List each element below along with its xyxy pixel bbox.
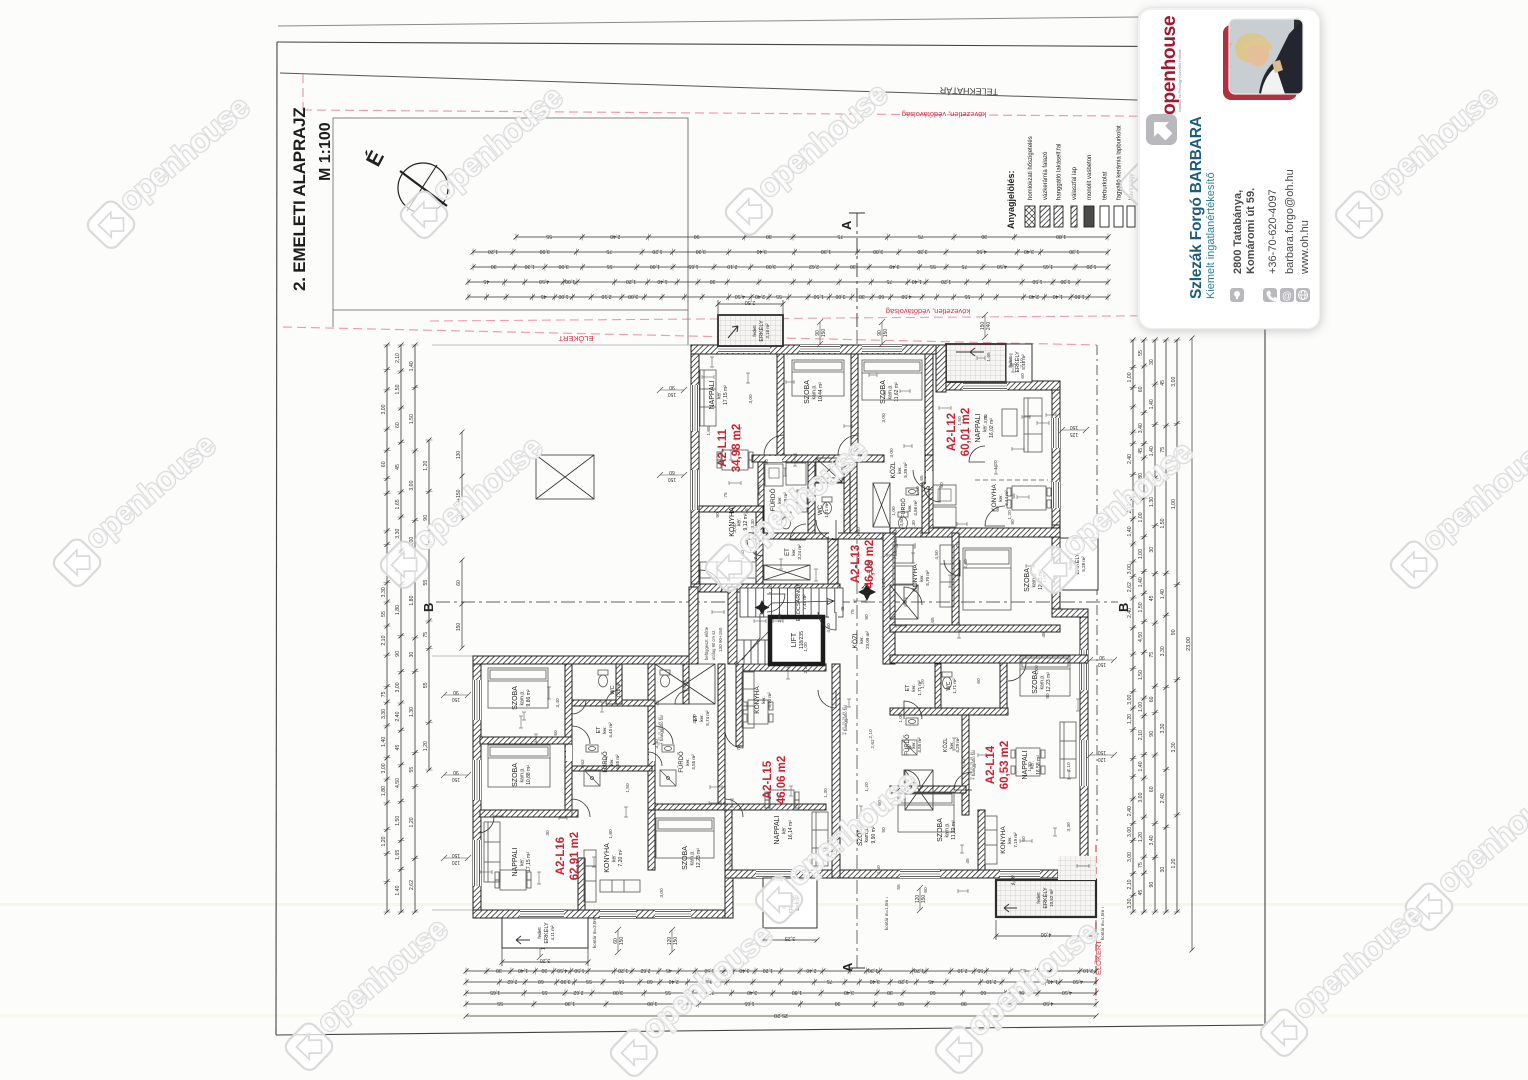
svg-text:75: 75 (887, 278, 893, 284)
svg-text:1,80: 1,80 (1010, 875, 1016, 885)
svg-text:75: 75 (837, 233, 843, 239)
svg-text:Ingatlan és Pénzügyi Közvet: Ingatlan és Pénzügyi Közvetítő Hálózat (1178, 49, 1182, 112)
svg-text:45: 45 (1041, 632, 1047, 638)
svg-text:A2-L12: A2-L12 (946, 413, 958, 451)
svg-text:ker.: ker. (911, 684, 916, 691)
svg-text:55: 55 (1138, 350, 1144, 356)
svg-text:1,30: 1,30 (911, 520, 917, 530)
svg-text:1,20: 1,20 (1171, 858, 1177, 868)
svg-text:1,40: 1,40 (381, 737, 387, 747)
svg-text:A2-L16: A2-L16 (555, 837, 567, 875)
svg-text:kontár m=1,0m ↓: kontár m=1,0m ↓ (884, 896, 889, 930)
svg-text:1,65: 1,65 (919, 475, 925, 485)
svg-text:150: 150 (668, 391, 677, 397)
svg-text:55: 55 (542, 989, 548, 995)
svg-text:55: 55 (546, 233, 552, 239)
svg-text:45: 45 (483, 278, 489, 284)
svg-text:A2-L15: A2-L15 (762, 760, 774, 799)
svg-text:30: 30 (491, 263, 497, 269)
svg-text:1,50: 1,50 (814, 293, 824, 299)
svg-text:45: 45 (840, 606, 846, 612)
svg-text:3,00: 3,00 (559, 263, 569, 269)
svg-text:NAPPALI: NAPPALI (512, 847, 519, 876)
svg-text:+ hanggátló fal: + hanggátló fal (843, 705, 848, 735)
svg-text:130 90+150: 130 90+150 (718, 627, 723, 652)
svg-text:45: 45 (965, 858, 971, 864)
svg-text:1,30: 1,30 (409, 707, 415, 717)
svg-text:1,50: 1,50 (915, 486, 921, 496)
svg-text:1,50: 1,50 (1138, 602, 1144, 612)
svg-text:1,20: 1,20 (488, 248, 498, 254)
svg-text:4,00: 4,00 (1041, 931, 1052, 937)
svg-text:ker.: ker. (919, 574, 924, 581)
svg-text:3,30: 3,30 (1066, 822, 1072, 832)
svg-text:4,56 m²: 4,56 m² (913, 500, 918, 516)
svg-text:62,91 m2: 62,91 m2 (569, 832, 581, 881)
svg-text:SZOBA: SZOBA (804, 380, 811, 404)
svg-text:3,00: 3,00 (873, 248, 883, 254)
svg-text:1,20: 1,20 (409, 817, 415, 827)
svg-text:homlokzati hőszigetelés: homlokzati hőszigetelés (1028, 136, 1034, 200)
svg-text:1,20: 1,20 (920, 679, 926, 689)
svg-text:60: 60 (1149, 696, 1155, 702)
svg-text:1,20: 1,20 (423, 461, 429, 471)
svg-text:KÖZL: KÖZL (851, 631, 859, 648)
svg-text:1,20: 1,20 (618, 967, 628, 973)
svg-text:30: 30 (887, 989, 893, 995)
svg-text:3,16 m²: 3,16 m² (765, 323, 770, 339)
svg-text:3,00: 3,00 (1127, 852, 1133, 862)
svg-text:90: 90 (1149, 882, 1155, 888)
svg-text:2,40: 2,40 (806, 967, 816, 973)
svg-text:12,23 m²: 12,23 m² (1046, 672, 1052, 692)
svg-text:1,20: 1,20 (652, 248, 662, 254)
svg-text:3,40: 3,40 (555, 698, 561, 708)
svg-text:1,20: 1,20 (1138, 832, 1144, 842)
svg-text:60: 60 (976, 678, 982, 684)
svg-text:60: 60 (669, 469, 675, 475)
svg-text:2,40: 2,40 (963, 559, 969, 569)
svg-text:1,20: 1,20 (423, 741, 429, 751)
svg-text:1,40: 1,40 (912, 278, 922, 284)
svg-text:30: 30 (1149, 359, 1155, 365)
svg-text:1,71 m²: 1,71 m² (824, 502, 829, 518)
svg-text:1,00: 1,00 (1138, 512, 1144, 522)
svg-text:2,10: 2,10 (986, 978, 996, 984)
svg-text:1,40: 1,40 (1160, 589, 1166, 599)
svg-text:90: 90 (961, 1000, 967, 1006)
svg-text:75: 75 (723, 492, 729, 498)
svg-text:55: 55 (607, 263, 613, 269)
svg-text:fedett: fedett (752, 325, 757, 337)
svg-text:4,50: 4,50 (395, 778, 401, 788)
svg-text:1,50: 1,50 (1032, 278, 1042, 284)
svg-text:B: B (421, 603, 436, 612)
svg-text:45: 45 (928, 978, 934, 984)
svg-text:1,20: 1,20 (1034, 665, 1040, 675)
svg-text:1,00: 1,00 (1138, 549, 1144, 559)
svg-text:45: 45 (744, 508, 750, 514)
svg-text:A2-L11: A2-L11 (717, 429, 729, 467)
svg-text:Anyagjelölés:: Anyagjelölés: (1006, 170, 1016, 229)
svg-text:30: 30 (981, 233, 987, 239)
svg-text:9,86 m²: 9,86 m² (526, 689, 532, 706)
svg-text:1,40: 1,40 (1138, 761, 1144, 771)
svg-text:3,20: 3,20 (540, 957, 551, 963)
svg-text:75: 75 (962, 263, 968, 269)
svg-text:1,30: 1,30 (868, 967, 878, 973)
svg-text:SZOBA: SZOBA (512, 763, 519, 787)
svg-text:FÜRDŐ: FÜRDŐ (678, 751, 685, 773)
svg-text:4,50: 4,50 (539, 278, 549, 284)
svg-text:1,80: 1,80 (1074, 293, 1084, 299)
svg-text:ker.: ker. (782, 826, 788, 834)
svg-text:120: 120 (452, 859, 461, 865)
svg-text:ker.: ker. (699, 714, 704, 721)
svg-text:45: 45 (541, 293, 547, 299)
svg-text:hanggátló lakáself.fal: hanggátló lakáself.fal (1057, 144, 1063, 200)
svg-text:Komáromi út 59.: Komáromi út 59. (1245, 188, 1257, 274)
svg-text:ERKÉLY: ERKÉLY (1042, 887, 1049, 909)
svg-text:1,80: 1,80 (1056, 233, 1066, 239)
svg-text:125: 125 (1070, 431, 1079, 437)
svg-text:150: 150 (1098, 661, 1107, 667)
svg-text:A2-L14: A2-L14 (985, 745, 997, 784)
svg-text:150: 150 (668, 476, 677, 482)
svg-text:1,50: 1,50 (1138, 670, 1144, 680)
svg-text:75: 75 (1149, 652, 1155, 658)
svg-text:TELEKHATÁR: TELEKHATÁR (939, 85, 998, 97)
svg-text:ker.: ker. (907, 504, 912, 511)
svg-text:ker.: ker. (520, 858, 526, 866)
svg-text:1,20: 1,20 (381, 836, 387, 846)
svg-text:3,30: 3,30 (1160, 646, 1166, 656)
svg-text:1,40: 1,40 (768, 584, 774, 594)
svg-text:ker.: ker. (717, 391, 723, 399)
svg-text:3,30: 3,30 (696, 248, 706, 254)
svg-text:1,80: 1,80 (792, 989, 802, 995)
svg-text:Kiemelt ingatlanértékesítő: Kiemelt ingatlanértékesítő (1205, 172, 1217, 299)
svg-text:3,25: 3,25 (785, 935, 796, 941)
svg-text:KONYHA: KONYHA (1000, 826, 1007, 854)
svg-text:3,30: 3,30 (1171, 742, 1177, 752)
svg-text:2,10: 2,10 (957, 967, 967, 973)
svg-text:Szlezák Forgó BARBARA: Szlezák Forgó BARBARA (1188, 116, 1205, 299)
svg-text:barbara.forgo@oh.hu: barbara.forgo@oh.hu (1284, 169, 1296, 274)
svg-text:1,20: 1,20 (763, 967, 773, 973)
svg-text:4,50: 4,50 (1043, 1000, 1053, 1006)
svg-text:2,40: 2,40 (755, 293, 765, 299)
svg-text:75: 75 (1138, 862, 1144, 868)
svg-text:75: 75 (381, 691, 387, 697)
svg-text:ERKÉLY: ERKÉLY (758, 320, 765, 342)
svg-text:60: 60 (930, 989, 936, 995)
svg-text:1,40: 1,40 (1127, 526, 1133, 536)
svg-text:1,30: 1,30 (823, 788, 829, 798)
svg-text:10,88 m²: 10,88 m² (526, 765, 532, 785)
svg-text:4,45 m²: 4,45 m² (608, 722, 613, 738)
svg-text:3,00: 3,00 (692, 714, 698, 724)
svg-text:kam.p.: kam.p. (520, 690, 526, 705)
svg-text:ker.: ker. (949, 741, 954, 748)
svg-text:90: 90 (694, 233, 700, 239)
svg-text:1,20: 1,20 (1007, 510, 1013, 520)
svg-text:3,40: 3,40 (1138, 423, 1144, 433)
svg-text:55: 55 (896, 884, 902, 890)
svg-text:55: 55 (618, 978, 624, 984)
svg-text:1,40: 1,40 (395, 885, 401, 895)
svg-text:NAPPALI: NAPPALI (709, 380, 716, 409)
svg-text:1,80: 1,80 (608, 829, 614, 839)
svg-text:kövezetlen, védőtávolság: kövezetlen, védőtávolság (886, 307, 970, 316)
svg-text:150: 150 (452, 852, 461, 858)
svg-text:60: 60 (553, 730, 559, 736)
svg-text:3,00: 3,00 (889, 448, 895, 458)
svg-text:1,00: 1,00 (1127, 372, 1133, 382)
svg-text:1,30: 1,30 (525, 263, 535, 269)
svg-text:90: 90 (1149, 731, 1155, 737)
svg-text:3,00: 3,00 (628, 293, 638, 299)
svg-text:kontár m=1,0m ↓: kontár m=1,0m ↓ (1100, 906, 1105, 940)
svg-text:1,80: 1,80 (381, 786, 387, 796)
svg-text:150: 150 (921, 895, 927, 904)
svg-text:1,65: 1,65 (744, 1000, 754, 1006)
svg-text:3,00: 3,00 (409, 480, 415, 490)
svg-text:45: 45 (395, 464, 401, 470)
svg-text:M 1:100: M 1:100 (317, 122, 334, 181)
svg-text:3,40: 3,40 (844, 989, 854, 995)
svg-text:30: 30 (764, 459, 770, 465)
svg-text:2,62: 2,62 (507, 978, 517, 984)
svg-text:10,62 m²: 10,62 m² (1049, 889, 1054, 907)
svg-text:90: 90 (1099, 654, 1105, 660)
svg-text:30: 30 (545, 830, 551, 836)
svg-text:55: 55 (381, 611, 387, 617)
svg-text:150: 150 (452, 776, 461, 782)
svg-text:3,00: 3,00 (766, 263, 776, 269)
svg-text:4,29 m²: 4,29 m² (955, 737, 960, 753)
svg-text:150: 150 (1070, 424, 1079, 430)
svg-text:2. EMELETI ALAPRAJZ: 2. EMELETI ALAPRAJZ (290, 107, 309, 291)
svg-text:3,40: 3,40 (1149, 835, 1155, 845)
svg-text:KONYHA: KONYHA (604, 843, 611, 873)
svg-text:ker.: ker. (602, 726, 607, 733)
svg-text:60: 60 (923, 887, 929, 893)
svg-text:4,50: 4,50 (1073, 978, 1083, 984)
svg-text:+ hanggátló fal: + hanggátló fal (971, 750, 976, 780)
svg-text:7,44 m²: 7,44 m² (802, 594, 807, 610)
svg-text:34,98 m2: 34,98 m2 (731, 424, 743, 473)
svg-text:75: 75 (736, 745, 742, 751)
svg-text:4,50: 4,50 (901, 293, 911, 299)
svg-text:2,10: 2,10 (1019, 358, 1025, 368)
svg-text:1,65: 1,65 (395, 850, 401, 860)
svg-text:1,30: 1,30 (821, 248, 831, 254)
svg-text:+36-70-620-4097: +36-70-620-4097 (1267, 189, 1279, 274)
svg-text:A: A (840, 962, 855, 972)
svg-text:KÖZL: KÖZL (942, 738, 949, 752)
svg-text:3,00: 3,00 (1127, 564, 1133, 574)
svg-text:3,40: 3,40 (757, 248, 767, 254)
svg-text:ker.: ker. (911, 741, 916, 748)
svg-text:kam.p.: kam.p. (520, 767, 526, 782)
svg-text:2,10: 2,10 (381, 635, 387, 645)
svg-text:3,30: 3,30 (381, 709, 387, 719)
svg-text:2800 Tatabánya,: 2800 Tatabánya, (1232, 190, 1244, 274)
svg-text:4,50: 4,50 (976, 248, 986, 254)
svg-text:1,30: 1,30 (1027, 762, 1033, 772)
svg-text:3,00: 3,00 (748, 394, 754, 404)
svg-text:3,00: 3,00 (881, 413, 887, 423)
svg-text:5,70 m²: 5,70 m² (925, 570, 930, 586)
svg-text:3,40: 3,40 (654, 739, 660, 749)
svg-text:4,50: 4,50 (997, 263, 1007, 269)
svg-text:3,00: 3,00 (659, 888, 665, 898)
svg-text:ELŐKERT: ELŐKERT (558, 334, 593, 343)
svg-text:90: 90 (1045, 693, 1051, 699)
svg-text:openhouse: openhouse (1159, 15, 1180, 115)
svg-text:150: 150 (456, 623, 462, 632)
svg-text:válaszfal lap: válaszfal lap (1072, 166, 1078, 200)
svg-text:3,00: 3,00 (1127, 695, 1133, 705)
svg-text:2,10: 2,10 (1138, 730, 1144, 740)
svg-text:60: 60 (939, 482, 945, 488)
svg-text:ker.: ker. (685, 758, 690, 765)
svg-text:4,50: 4,50 (934, 550, 940, 560)
svg-text:2,40: 2,40 (1160, 793, 1166, 803)
svg-text:45: 45 (1149, 595, 1155, 601)
svg-text:55: 55 (409, 767, 415, 773)
svg-text:30: 30 (541, 967, 547, 973)
svg-text:kam.p.: kam.p. (812, 384, 818, 399)
svg-text:60: 60 (395, 422, 401, 428)
svg-text:75: 75 (955, 542, 961, 548)
svg-text:2,40: 2,40 (1127, 454, 1133, 464)
svg-text:A2-L13: A2-L13 (850, 545, 862, 583)
svg-text:vázkerámia falazó: vázkerámia falazó (1043, 151, 1049, 200)
svg-text:kam.p.: kam.p. (945, 822, 951, 837)
svg-text:1,20: 1,20 (898, 978, 908, 984)
svg-text:1,50: 1,50 (625, 783, 631, 793)
svg-text:45: 45 (1138, 448, 1144, 454)
svg-text:1,00: 1,00 (558, 293, 568, 299)
svg-text:2,40: 2,40 (395, 711, 401, 721)
svg-text:25,20: 25,20 (774, 1012, 788, 1018)
svg-text:1,20: 1,20 (1127, 714, 1133, 724)
svg-text:ker.: ker. (791, 548, 796, 555)
svg-text:75: 75 (606, 248, 612, 254)
svg-text:55: 55 (977, 967, 983, 973)
svg-text:1,20: 1,20 (626, 278, 636, 284)
svg-text:7,19 m²: 7,19 m² (1013, 832, 1018, 848)
svg-text:120: 120 (1098, 756, 1107, 762)
svg-text:150: 150 (619, 937, 625, 946)
svg-text:4,50: 4,50 (1062, 989, 1072, 995)
svg-text:30: 30 (496, 967, 502, 973)
svg-text:ELŐCSARNOK: ELŐCSARNOK (795, 583, 802, 622)
svg-text:3,00: 3,00 (835, 293, 845, 299)
svg-text:60,53 m2: 60,53 m2 (999, 741, 1011, 790)
svg-text:150: 150 (821, 329, 827, 338)
svg-text:LIFT: LIFT (791, 632, 798, 647)
svg-text:kontár m=3,0m ↓: kontár m=3,0m ↓ (592, 914, 597, 948)
svg-text:1,65: 1,65 (1043, 263, 1053, 269)
svg-text:90: 90 (1171, 629, 1177, 635)
svg-text:1,50: 1,50 (395, 816, 401, 826)
svg-text:7,20 m²: 7,20 m² (618, 849, 624, 866)
svg-text:2,40: 2,40 (610, 233, 620, 239)
svg-text:2,10: 2,10 (868, 729, 874, 739)
svg-text:1,65: 1,65 (490, 989, 500, 995)
svg-text:75: 75 (827, 978, 833, 984)
svg-text:60: 60 (1020, 373, 1026, 379)
svg-text:1,00: 1,00 (650, 263, 660, 269)
svg-text:2,10: 2,10 (803, 664, 809, 674)
svg-text:90: 90 (1010, 519, 1016, 525)
svg-text:1,20: 1,20 (993, 460, 999, 470)
svg-text:2,62: 2,62 (809, 263, 819, 269)
svg-text:17,15 m²: 17,15 m² (526, 852, 532, 872)
svg-text:1,00: 1,00 (1138, 702, 1144, 712)
svg-text:1,65: 1,65 (706, 426, 712, 436)
svg-text:45: 45 (395, 745, 401, 751)
svg-text:5,39 m²: 5,39 m² (903, 462, 908, 478)
svg-text:1,40: 1,40 (856, 527, 862, 537)
svg-text:3,00: 3,00 (1138, 792, 1144, 802)
svg-text:fedett: fedett (537, 927, 542, 939)
svg-text:2,10: 2,10 (395, 353, 401, 363)
svg-text:3,00: 3,00 (1127, 827, 1133, 837)
svg-text:55: 55 (965, 293, 971, 299)
svg-text:NAPPALI: NAPPALI (975, 413, 982, 442)
svg-text:ker.: ker. (998, 494, 1003, 501)
svg-text:1,30: 1,30 (565, 1000, 575, 1006)
svg-text:3,40: 3,40 (1024, 248, 1034, 254)
svg-text:1,40: 1,40 (1053, 293, 1063, 299)
svg-text:60: 60 (381, 461, 387, 467)
svg-text:A: A (839, 220, 854, 230)
svg-text:1,20: 1,20 (941, 278, 951, 284)
svg-text:2,62: 2,62 (409, 880, 415, 890)
svg-text:5,74 m²: 5,74 m² (705, 710, 710, 726)
svg-text:10,44 m²: 10,44 m² (818, 382, 824, 402)
svg-text:ker.: ker. (983, 424, 989, 432)
svg-text:KÖZL: KÖZL (889, 461, 897, 478)
svg-text:3,40: 3,40 (889, 263, 899, 269)
svg-text:@: @ (1282, 291, 1292, 302)
svg-text:60: 60 (538, 978, 544, 984)
svg-text:1,65: 1,65 (395, 499, 401, 509)
svg-text:4,50: 4,50 (735, 293, 745, 299)
svg-text:55: 55 (776, 293, 782, 299)
svg-text:FÜRDŐ: FÜRDŐ (900, 498, 907, 518)
svg-text:30: 30 (409, 652, 415, 658)
svg-text:55: 55 (423, 580, 429, 586)
svg-text:4,50: 4,50 (826, 623, 832, 633)
svg-text:60,01 m2: 60,01 m2 (960, 408, 972, 457)
svg-text:1,20: 1,20 (881, 578, 887, 588)
svg-text:www.oh.hu: www.oh.hu (1299, 220, 1311, 275)
svg-text:2,40: 2,40 (1127, 608, 1133, 618)
svg-text:90: 90 (669, 384, 675, 390)
svg-text:3,30: 3,30 (395, 529, 401, 539)
svg-text:kam.p.: kam.p. (1040, 674, 1046, 689)
svg-text:kam.p.: kam.p. (888, 384, 894, 399)
svg-text:1,00: 1,00 (803, 642, 809, 652)
svg-text:ker.: ker. (897, 466, 902, 473)
svg-text:90: 90 (395, 651, 401, 657)
svg-text:2,10: 2,10 (1083, 967, 1093, 973)
